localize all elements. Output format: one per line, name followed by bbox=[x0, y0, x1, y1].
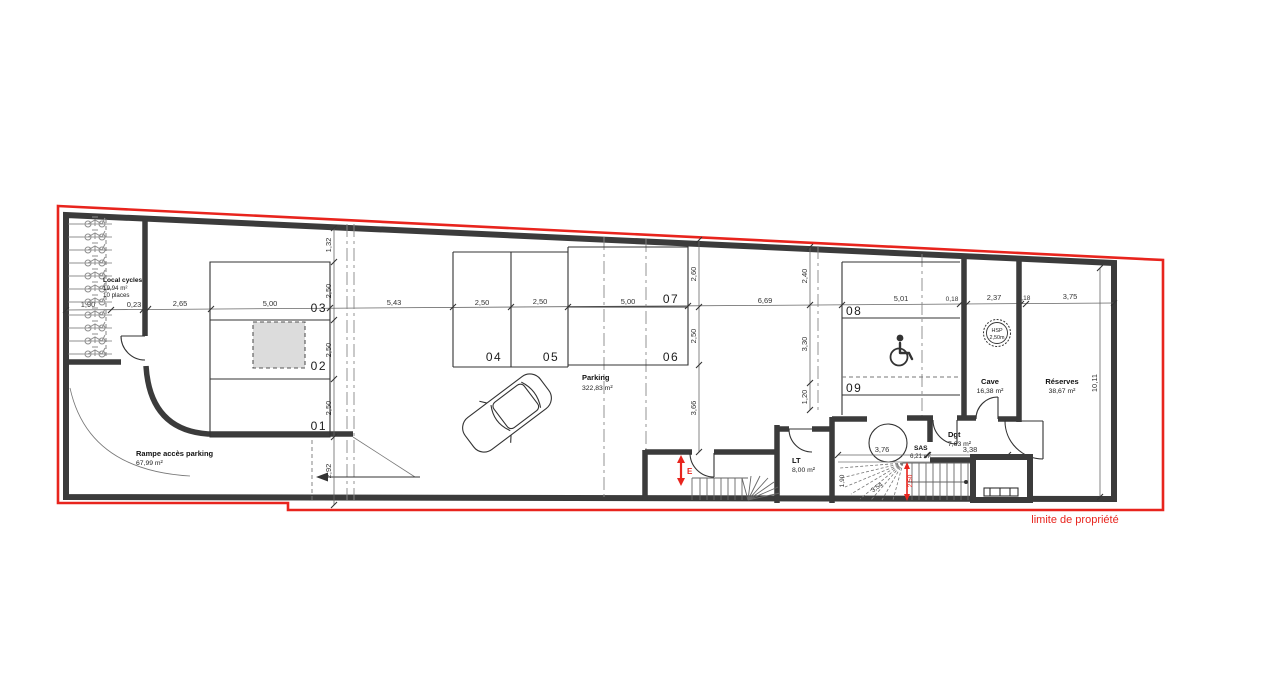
floor-plan: limite de propriété 1,90 0,23 2,65 5,00 … bbox=[0, 0, 1280, 693]
dim-label: 2,50 bbox=[475, 298, 490, 307]
hsp-label: HSP bbox=[991, 328, 1002, 334]
dim-label: 2,65 bbox=[173, 299, 188, 308]
spot-label-08: 08 bbox=[846, 304, 862, 318]
room-area-lt: 8,00 m² bbox=[792, 467, 816, 474]
dim-label: 2,50 bbox=[324, 284, 333, 299]
stair-red-dim-label: 2,50 bbox=[907, 474, 914, 487]
dim-label: 3,75 bbox=[1063, 292, 1078, 301]
spot-label-03: 03 bbox=[311, 301, 327, 315]
dim-label: 2,40 bbox=[800, 269, 809, 284]
dim-label: 3,38 bbox=[963, 445, 978, 454]
dim-label: 10,11 bbox=[1090, 374, 1099, 392]
dim-label: 1,20 bbox=[800, 390, 809, 405]
dim-label: 1,90 bbox=[839, 474, 846, 487]
dim-label: 5,00 bbox=[263, 299, 278, 308]
room-label-cave: Cave bbox=[981, 377, 999, 386]
room-area-cave: 16,38 m² bbox=[977, 388, 1005, 395]
spot-label-06: 06 bbox=[663, 350, 679, 364]
room-label-ramp: Rampe accès parking bbox=[136, 449, 214, 458]
dim-label: 2,60 bbox=[689, 267, 698, 282]
hsp-value: 2,50m bbox=[990, 335, 1005, 341]
room-capacity-local-cycles: 10 places bbox=[103, 292, 130, 299]
dim-label: 3,30 bbox=[800, 337, 809, 352]
dim-label: 5,01 bbox=[894, 294, 909, 303]
dim-label: 1,32 bbox=[324, 238, 333, 253]
dim-label: 2,92 bbox=[324, 464, 333, 479]
spot-label-05: 05 bbox=[543, 350, 559, 364]
room-label-reserves: Réserves bbox=[1045, 377, 1078, 386]
room-label-lt: LT bbox=[792, 456, 801, 465]
room-label-sas: SAS bbox=[914, 445, 928, 452]
dim-label: 2,50 bbox=[689, 329, 698, 344]
dim-label: 2,50 bbox=[533, 297, 548, 306]
dim-label: 2,50 bbox=[324, 401, 333, 416]
dim-label: 6,69 bbox=[758, 296, 773, 305]
building-walls bbox=[66, 215, 1114, 499]
dim-label: 0,23 bbox=[127, 300, 142, 309]
page: { "colors": { "wall": "#3b3b3b", "bounda… bbox=[0, 0, 1280, 693]
dim-label: 5,43 bbox=[387, 298, 402, 307]
room-area-reserves: 38,67 m² bbox=[1049, 388, 1077, 395]
dim-label: 2,50 bbox=[324, 343, 333, 358]
room-label-parking: Parking bbox=[582, 373, 610, 382]
spot-label-04: 04 bbox=[486, 350, 502, 364]
spot-label-02: 02 bbox=[311, 359, 327, 373]
spot-label-01: 01 bbox=[311, 419, 327, 433]
room-area-local-cycles: 19,94 m² bbox=[103, 285, 127, 292]
structural-pillar bbox=[253, 322, 305, 368]
property-boundary-label: limite de propriété bbox=[1031, 514, 1118, 526]
dim-label: 3,76 bbox=[875, 445, 890, 454]
entrance-marker-label: E bbox=[687, 467, 693, 476]
dim-label: 0,18 bbox=[946, 296, 959, 303]
dim-label: 3,66 bbox=[689, 401, 698, 416]
room-area-parking: 322,83 m² bbox=[582, 385, 613, 392]
spot-label-09: 09 bbox=[846, 381, 862, 395]
room-area-ramp: 67,99 m² bbox=[136, 460, 164, 467]
hsp-stamp: HSP 2,50m bbox=[984, 320, 1011, 347]
dim-label: 5,00 bbox=[621, 297, 636, 306]
dim-label: 2,37 bbox=[987, 293, 1002, 302]
spot-label-07: 07 bbox=[663, 292, 679, 306]
elevator-shaft bbox=[973, 457, 1030, 500]
room-label-dgt: Dgt bbox=[948, 430, 961, 439]
room-label-local-cycles: Local cycles bbox=[103, 277, 143, 284]
